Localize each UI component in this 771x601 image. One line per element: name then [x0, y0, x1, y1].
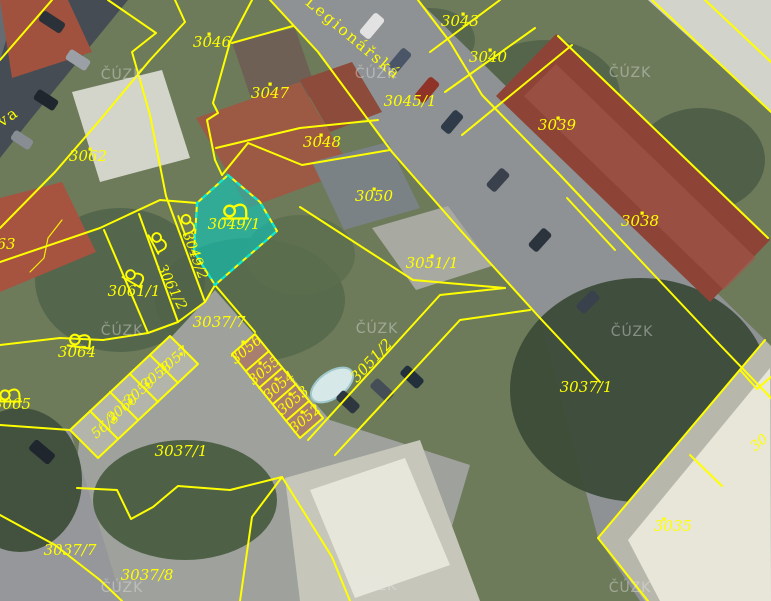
cuzk-watermark: ČÚZK: [611, 322, 654, 340]
cuzk-watermark: ČÚZK: [355, 64, 398, 82]
parcel-label: 3038: [621, 212, 659, 230]
cuzk-watermark: ČÚZK: [101, 578, 144, 596]
cuzk-watermark: ČÚZK: [609, 578, 652, 596]
aerial-photo-layer: [0, 0, 771, 601]
parcel-label: 3039: [538, 116, 577, 134]
map-canvas[interactable]: 3046304730483045/13043304030393038305030…: [0, 0, 771, 601]
parcel-label: 63: [0, 235, 16, 253]
parcel-label: 3047: [251, 84, 290, 102]
parcel-label: 3064: [58, 343, 96, 361]
parcel-label: 3043: [441, 12, 479, 30]
parcel-label: 3062: [69, 147, 107, 165]
parcel-label: 3040: [469, 48, 508, 66]
parcel-label: 3046: [193, 33, 232, 51]
parcel-label: 3037/7: [193, 313, 246, 331]
cadastral-map[interactable]: 3046304730483045/13043304030393038305030…: [0, 0, 771, 601]
cuzk-watermark: ČÚZK: [355, 576, 398, 594]
cuzk-watermark: ČÚZK: [101, 65, 144, 83]
parcel-label: 3051/1: [406, 254, 459, 272]
parcel-label: 3045/1: [384, 92, 437, 110]
parcel-label: 3061/1: [108, 282, 161, 300]
cuzk-watermark: ČÚZK: [356, 319, 399, 337]
parcel-label: 3037/1: [155, 442, 208, 460]
parcel-label: 3037/7: [44, 541, 97, 559]
parcel-label: 3049/1: [208, 215, 261, 233]
parcel-label: 3050: [355, 187, 394, 205]
parcel-label: 3037/1: [560, 378, 613, 396]
parcel-label: 3048: [303, 133, 341, 151]
cuzk-watermark: ČÚZK: [101, 321, 144, 339]
parcel-label: 3065: [0, 395, 31, 413]
parcel-label: 3035: [654, 517, 692, 535]
cuzk-watermark: ČÚZK: [609, 63, 652, 81]
